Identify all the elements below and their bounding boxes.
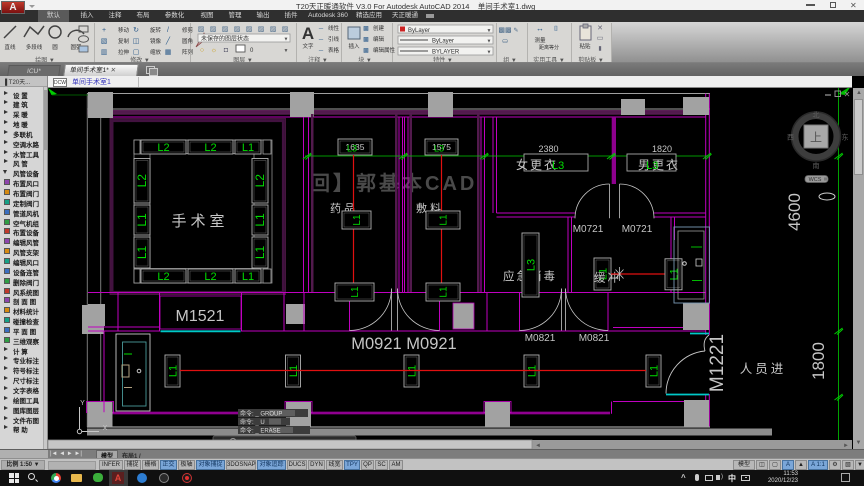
- svg-text:M1521: M1521: [176, 308, 225, 325]
- svg-text:L3: L3: [525, 259, 537, 271]
- svg-text:移动: 移动: [118, 26, 130, 34]
- svg-text:北: 北: [813, 111, 820, 119]
- svg-text:L2: L2: [204, 271, 216, 283]
- svg-text:▨: ▨: [234, 26, 241, 33]
- svg-text:ByLayer: ByLayer: [432, 39, 454, 45]
- svg-text:▨: ▨: [222, 26, 229, 33]
- svg-text:☼: ☼: [211, 47, 217, 54]
- svg-text:○: ○: [200, 47, 204, 54]
- svg-text:✕: ✕: [597, 25, 603, 32]
- svg-text:L2: L2: [135, 174, 149, 188]
- svg-text:缩放: 缩放: [150, 48, 162, 56]
- svg-text:L1: L1: [135, 213, 149, 227]
- svg-text:M0821: M0821: [579, 333, 610, 344]
- svg-text:✕: ✕: [844, 90, 851, 99]
- svg-text:直线: 直线: [4, 43, 16, 51]
- svg-text:▩▩: ▩▩: [498, 27, 511, 34]
- svg-text:多段线: 多段线: [26, 43, 43, 51]
- svg-text:A: A: [302, 24, 314, 43]
- svg-text:阵列: 阵列: [182, 48, 194, 56]
- svg-text:M1221: M1221: [707, 334, 728, 392]
- svg-text:▼: ▼: [487, 50, 492, 56]
- svg-text:旋转: 旋转: [150, 26, 162, 34]
- svg-text:L1: L1: [242, 271, 254, 283]
- svg-text:人员进: 人员进: [740, 362, 787, 376]
- svg-text:2380: 2380: [538, 144, 558, 154]
- svg-text:L2: L2: [253, 174, 267, 188]
- svg-text:L2: L2: [157, 142, 169, 154]
- svg-text:▼: ▼: [284, 37, 289, 43]
- svg-text:⛀: ⛀: [502, 38, 508, 45]
- svg-text:▨: ▨: [246, 26, 253, 33]
- svg-text:─: ─: [318, 37, 324, 43]
- svg-text:命令: _ ERASE: 命令: _ ERASE: [240, 427, 281, 435]
- svg-text:▥: ▥: [101, 49, 108, 56]
- svg-text:L1: L1: [135, 246, 149, 260]
- svg-text:/: /: [167, 27, 169, 34]
- svg-text:↻: ↻: [133, 27, 139, 34]
- svg-text:L1: L1: [439, 214, 450, 226]
- svg-text:▨: ▨: [282, 26, 289, 33]
- svg-text:文字: 文字: [302, 42, 314, 50]
- svg-text:▼: ▼: [487, 28, 492, 34]
- svg-text:引线: 引线: [328, 35, 340, 43]
- svg-text:▧: ▧: [101, 38, 108, 45]
- svg-text:L1: L1: [350, 286, 361, 298]
- svg-text:M0821: M0821: [525, 333, 556, 344]
- svg-text:插入: 插入: [348, 42, 360, 50]
- svg-text:L1: L1: [253, 246, 267, 260]
- svg-text:▼: ▼: [284, 48, 289, 54]
- svg-text:L3: L3: [434, 144, 444, 154]
- svg-text:▩: ▩: [363, 48, 369, 54]
- svg-text:L1: L1: [352, 214, 363, 226]
- svg-text:线性: 线性: [328, 24, 340, 32]
- svg-text:▨: ▨: [210, 26, 217, 33]
- svg-text:▨: ▨: [198, 26, 205, 33]
- svg-text:L3: L3: [552, 160, 564, 172]
- svg-text:▢: ▢: [133, 49, 140, 56]
- svg-text:▼: ▼: [487, 39, 492, 45]
- svg-text:M0721: M0721: [622, 224, 653, 235]
- svg-text:未保存的图层状态: 未保存的图层状态: [201, 35, 249, 43]
- svg-text:表格: 表格: [328, 46, 340, 54]
- svg-text:L1: L1: [253, 213, 267, 227]
- svg-text:✎: ✎: [513, 27, 518, 34]
- svg-text:粘贴: 粘贴: [579, 42, 591, 50]
- svg-text:编辑属性: 编辑属性: [373, 46, 396, 54]
- svg-text:男更衣: 男更衣: [638, 157, 680, 172]
- svg-text:西: 西: [787, 134, 794, 142]
- svg-text:L3: L3: [347, 144, 357, 154]
- svg-text:距离等分: 距离等分: [539, 44, 559, 51]
- svg-text:复制: 复制: [118, 37, 130, 45]
- svg-text:L2: L2: [157, 271, 169, 283]
- svg-text:上: 上: [810, 131, 822, 145]
- svg-text:╱: ╱: [165, 36, 171, 45]
- svg-text:东: 东: [842, 133, 849, 142]
- svg-text:L1: L1: [167, 365, 179, 377]
- svg-text:▨: ▨: [258, 26, 265, 33]
- svg-text:回】郭基本CAD: 回】郭基本CAD: [310, 171, 477, 195]
- svg-text:L1: L1: [648, 365, 660, 377]
- svg-text:镜像: 镜像: [150, 37, 162, 45]
- svg-text:命令: _ GROUP: 命令: _ GROUP: [240, 410, 282, 418]
- svg-text:▦: ▦: [165, 49, 172, 56]
- svg-text:─: ─: [318, 26, 324, 32]
- svg-text:X: X: [103, 425, 108, 432]
- svg-text:创建: 创建: [373, 24, 385, 32]
- svg-text:M0721: M0721: [573, 224, 604, 235]
- svg-text:手术室: 手术室: [171, 213, 228, 230]
- svg-text:1800: 1800: [809, 342, 828, 380]
- svg-text:▨: ▨: [270, 26, 277, 33]
- svg-text:Y: Y: [80, 400, 85, 407]
- svg-text:▩: ▩: [363, 26, 369, 32]
- svg-text:◘: ◘: [224, 47, 228, 54]
- svg-text:L1: L1: [242, 142, 254, 154]
- svg-text:L1: L1: [439, 286, 450, 298]
- svg-text:修剪: 修剪: [182, 26, 194, 34]
- svg-text:▭: ▭: [597, 35, 604, 42]
- svg-text:命令: _ U: 命令: _ U: [240, 418, 265, 426]
- svg-text:▩: ▩: [363, 37, 369, 43]
- svg-text:编辑: 编辑: [373, 35, 385, 43]
- svg-text:⌷: ⌷: [554, 26, 558, 33]
- svg-text:WCS: WCS: [809, 177, 822, 183]
- svg-text:圆: 圆: [52, 44, 58, 51]
- svg-text:↔: ↔: [536, 24, 544, 33]
- svg-text:ByLayer: ByLayer: [408, 28, 430, 34]
- svg-text:L3: L3: [646, 160, 658, 172]
- svg-text:+: +: [102, 27, 106, 34]
- svg-text:M0921 M0921: M0921 M0921: [351, 335, 457, 353]
- svg-text:─: ─: [318, 48, 324, 54]
- svg-text:0: 0: [250, 48, 254, 54]
- svg-text:缓冲: 缓冲: [594, 271, 621, 285]
- svg-text:▮: ▮: [598, 46, 601, 52]
- svg-text:拉伸: 拉伸: [118, 48, 130, 56]
- svg-text:◫: ◫: [133, 38, 140, 45]
- svg-text:南: 南: [813, 161, 820, 170]
- svg-text:BYLAYER: BYLAYER: [432, 50, 460, 56]
- svg-text:圆角: 圆角: [182, 37, 193, 45]
- svg-text:测量: 测量: [534, 36, 546, 44]
- svg-text:1820: 1820: [652, 144, 672, 154]
- svg-text:4600: 4600: [785, 193, 804, 231]
- svg-text:L2: L2: [204, 142, 216, 154]
